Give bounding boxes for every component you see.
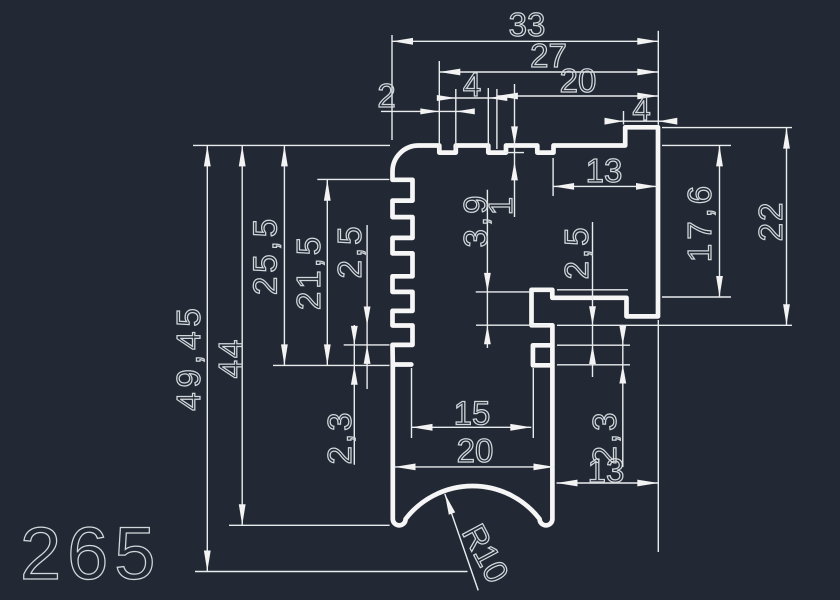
svg-text:20: 20 xyxy=(457,432,494,469)
svg-text:22: 22 xyxy=(752,201,789,242)
svg-text:2,3: 2,3 xyxy=(321,410,358,465)
svg-text:17,6: 17,6 xyxy=(681,182,718,262)
svg-text:1: 1 xyxy=(482,197,519,215)
svg-text:265: 265 xyxy=(20,512,161,595)
svg-text:2,5: 2,5 xyxy=(331,224,368,279)
svg-text:2,5: 2,5 xyxy=(558,225,595,280)
svg-text:13: 13 xyxy=(586,152,623,189)
svg-text:4: 4 xyxy=(632,90,650,127)
svg-text:15: 15 xyxy=(454,394,491,431)
svg-text:49,45: 49,45 xyxy=(170,303,207,411)
svg-text:21,5: 21,5 xyxy=(290,234,327,310)
svg-text:2: 2 xyxy=(377,77,395,114)
svg-text:44: 44 xyxy=(212,338,249,379)
svg-text:25,5: 25,5 xyxy=(246,215,283,295)
svg-text:20: 20 xyxy=(560,62,597,99)
svg-text:2,3: 2,3 xyxy=(586,410,623,465)
svg-text:4: 4 xyxy=(463,66,481,103)
